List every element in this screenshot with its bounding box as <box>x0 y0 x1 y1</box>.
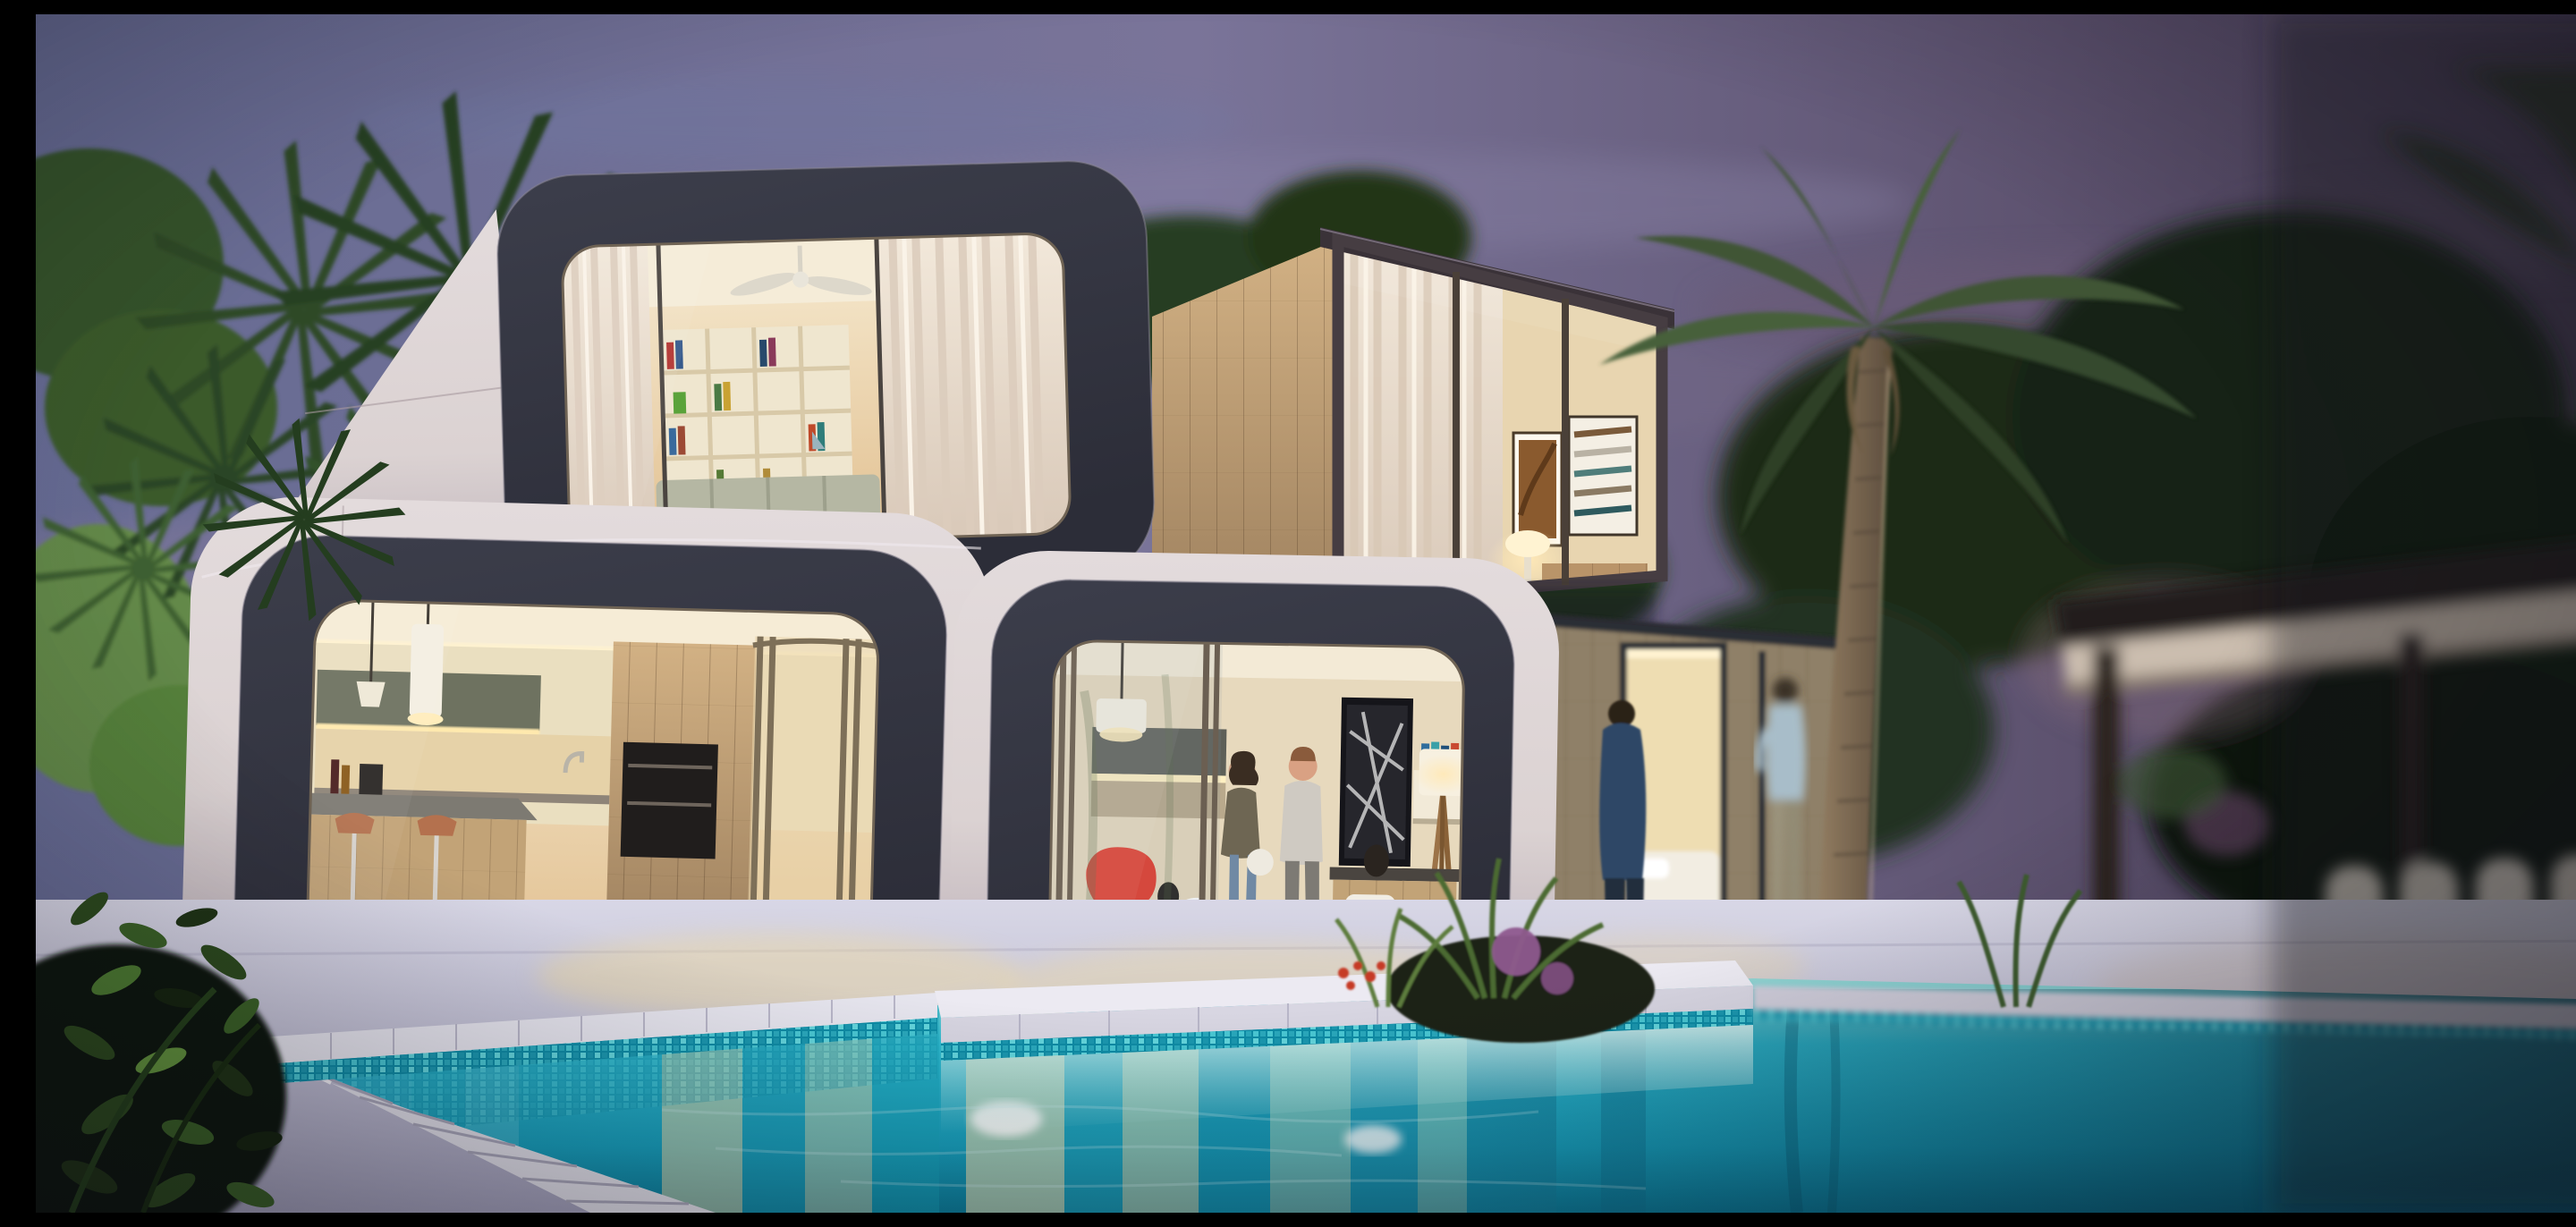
vignette <box>36 14 2576 1213</box>
architectural-render <box>36 14 2576 1213</box>
scene-canvas <box>36 14 2576 1213</box>
